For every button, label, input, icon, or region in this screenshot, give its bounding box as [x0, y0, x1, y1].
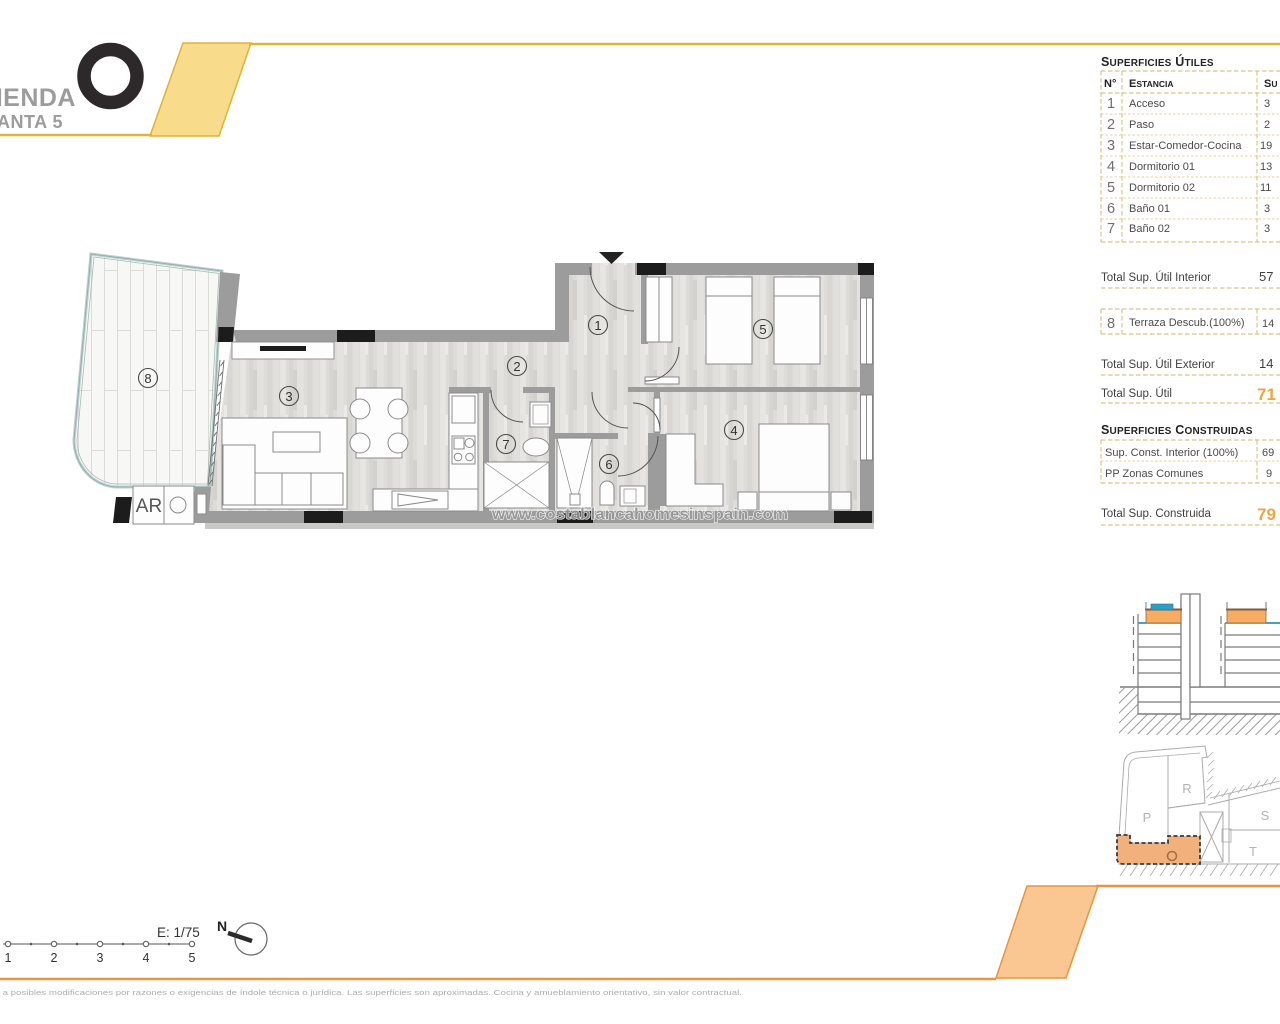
svg-text:57: 57: [1259, 269, 1273, 284]
svg-text:P: P: [1143, 810, 1152, 825]
svg-text:Estar-Comedor-Cocina: Estar-Comedor-Cocina: [1129, 140, 1242, 152]
svg-text:6: 6: [1107, 201, 1115, 217]
svg-text:AR: AR: [136, 496, 162, 517]
svg-text:7: 7: [502, 437, 509, 452]
svg-text:8: 8: [144, 371, 151, 386]
svg-text:N: N: [217, 918, 227, 934]
svg-text:2: 2: [1264, 119, 1270, 131]
svg-text:19: 19: [1260, 140, 1272, 152]
svg-text:4: 4: [730, 423, 737, 438]
svg-text:Sup. Const. Interior (100%): Sup. Const. Interior (100%): [1105, 447, 1238, 459]
svg-text:5: 5: [1107, 180, 1115, 196]
svg-text:Baño 01: Baño 01: [1129, 203, 1170, 215]
svg-text:SU: SU: [1264, 78, 1277, 90]
svg-text:Dormitorio 01: Dormitorio 01: [1129, 161, 1195, 173]
svg-text:3: 3: [1264, 98, 1270, 110]
svg-text:Total Sup. Útil Interior: Total Sup. Útil Interior: [1101, 271, 1211, 284]
svg-text:3: 3: [1107, 138, 1115, 154]
svg-text:Paso: Paso: [1129, 119, 1154, 131]
svg-text:T: T: [1249, 844, 1257, 859]
svg-text:2: 2: [1107, 117, 1115, 133]
svg-text:3: 3: [285, 389, 292, 404]
svg-text:69: 69: [1262, 447, 1274, 459]
svg-text:9: 9: [1266, 468, 1272, 480]
svg-text:1: 1: [5, 951, 12, 965]
svg-text:7: 7: [1107, 221, 1115, 237]
svg-text:6: 6: [605, 457, 612, 472]
svg-text:Total Sup. Útil Exterior: Total Sup. Útil Exterior: [1101, 358, 1215, 371]
svg-text:2: 2: [51, 951, 58, 965]
svg-text:www.costablancahomesinspain.co: www.costablancahomesinspain.com: [491, 506, 788, 523]
svg-text:sujeto a posibles modificacion: sujeto a posibles modificaciones por raz…: [0, 988, 742, 997]
svg-text:R: R: [1182, 781, 1191, 796]
svg-text:SUPERFICIES CONSTRUIDAS: SUPERFICIES CONSTRUIDAS: [1101, 423, 1253, 437]
svg-text:8: 8: [1107, 316, 1115, 332]
svg-text:1: 1: [1107, 96, 1115, 112]
svg-text:ESTANCIA: ESTANCIA: [1129, 78, 1174, 90]
svg-text:2: 2: [513, 359, 520, 374]
svg-text:4: 4: [1107, 159, 1115, 175]
svg-text:VIVIENDA: VIVIENDA: [0, 84, 76, 112]
svg-text:11: 11: [1260, 182, 1271, 194]
svg-text:79: 79: [1257, 505, 1276, 524]
svg-text:Dormitorio 02: Dormitorio 02: [1129, 182, 1195, 194]
svg-text:3: 3: [1264, 223, 1270, 235]
svg-text:SUPERFICIES ÚTILES: SUPERFICIES ÚTILES: [1101, 54, 1214, 69]
svg-text:Terraza Descub.(100%): Terraza Descub.(100%): [1129, 317, 1245, 329]
svg-text:13: 13: [1260, 161, 1272, 173]
svg-text:71: 71: [1257, 385, 1276, 404]
svg-text:Acceso: Acceso: [1129, 98, 1165, 110]
svg-text:Total Sup. Útil: Total Sup. Útil: [1101, 387, 1172, 400]
svg-text:3: 3: [1264, 203, 1270, 215]
svg-text:5: 5: [759, 322, 766, 337]
svg-text:5: 5: [189, 951, 196, 965]
svg-text:N°: N°: [1104, 78, 1116, 90]
svg-text:4: 4: [143, 951, 150, 965]
svg-text:PLANTA 5: PLANTA 5: [0, 112, 63, 132]
svg-text:Baño 02: Baño 02: [1129, 223, 1170, 235]
svg-text:14: 14: [1259, 356, 1273, 371]
svg-text:Total Sup. Construida: Total Sup. Construida: [1101, 508, 1212, 520]
svg-text:E: 1/75: E: 1/75: [157, 925, 200, 940]
svg-text:PP Zonas Comunes: PP Zonas Comunes: [1105, 468, 1204, 480]
svg-text:S: S: [1261, 808, 1270, 823]
svg-text:1: 1: [594, 318, 601, 333]
svg-text:3: 3: [97, 951, 104, 965]
svg-text:14: 14: [1262, 318, 1274, 330]
